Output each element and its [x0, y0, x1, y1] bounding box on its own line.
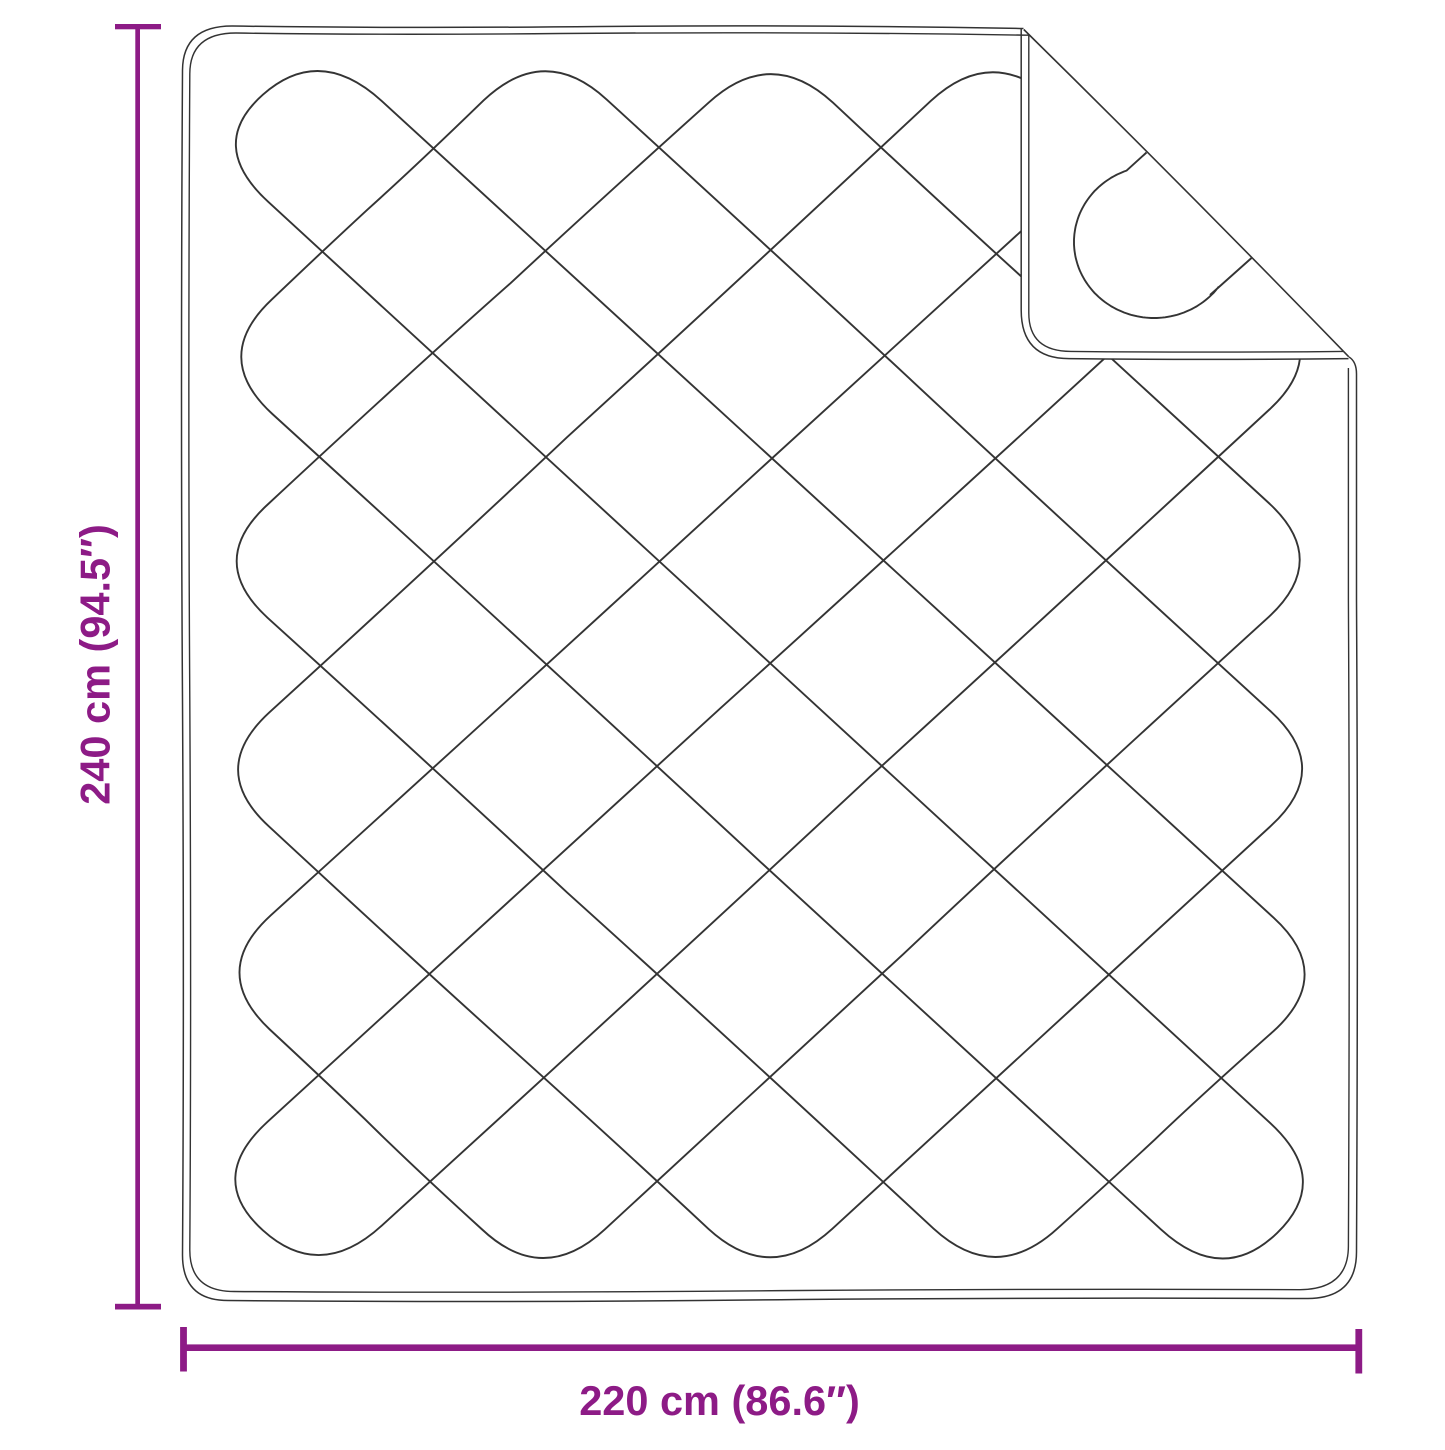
svg-text:220 cm (86.6″): 220 cm (86.6″)	[579, 1377, 860, 1424]
svg-text:240 cm (94.5″): 240 cm (94.5″)	[72, 524, 119, 805]
